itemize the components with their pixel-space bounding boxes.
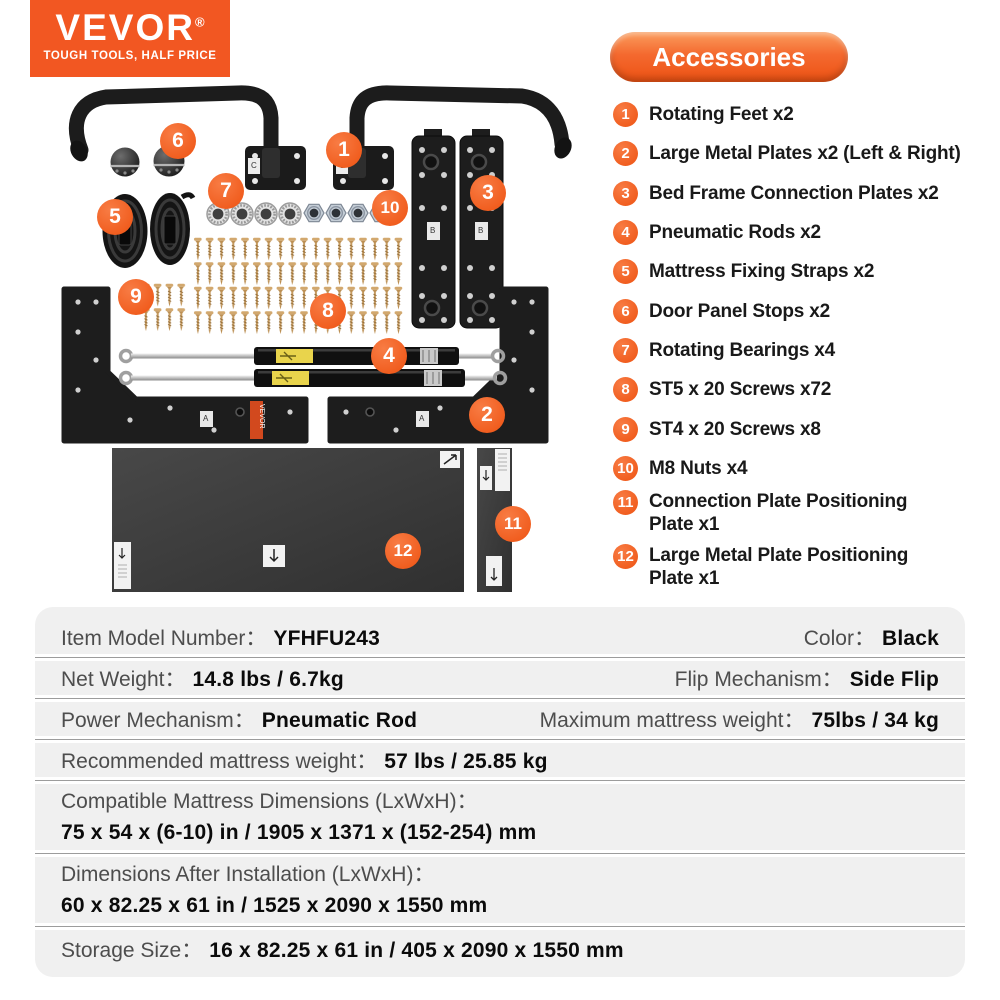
vevor-logo-wordmark: VEVOR® xyxy=(30,9,230,46)
spec-value: YFHFU243 xyxy=(273,627,380,651)
spec-row-mattress-dimensions: Compatible Mattress Dimensions (LxWxH)： … xyxy=(61,784,939,850)
accessory-label: Rotating Feet x2 xyxy=(649,103,794,126)
accessory-label: Rotating Bearings x4 xyxy=(649,339,835,362)
spec-row-weight-flip: Net Weight：14.8 lbs / 6.7kg Flip Mechani… xyxy=(61,661,939,695)
product-infographic: { "logo": { "brand": "VEVOR", "registere… xyxy=(0,0,1000,1000)
part-callout-4: 4 xyxy=(371,338,407,374)
accessory-item-7: 7Rotating Bearings x4 xyxy=(613,331,998,370)
spec-power-mechanism: Power Mechanism：Pneumatic Rod xyxy=(61,704,417,734)
accessory-item-4: 4Pneumatic Rods x2 xyxy=(613,213,998,252)
spec-row-power-maxweight: Power Mechanism：Pneumatic Rod Maximum ma… xyxy=(61,702,939,736)
spec-row-installed-dimensions: Dimensions After Installation (LxWxH)： 6… xyxy=(61,857,939,923)
large-plate-marking: A xyxy=(419,414,425,423)
part-callout-2: 2 xyxy=(469,397,505,433)
accessory-item-11: 11Connection Plate Positioning Plate x1 xyxy=(613,488,998,538)
spec-max-mattress-weight: Maximum mattress weight：75lbs / 34 kg xyxy=(540,704,939,734)
row-divider xyxy=(35,850,965,857)
accessory-label: Connection Plate Positioning Plate x1 xyxy=(649,490,907,536)
spec-model: Item Model Number：YFHFU243 xyxy=(61,622,380,652)
spec-value: Pneumatic Rod xyxy=(262,709,417,733)
accessory-item-2: 2Large Metal Plates x2 (Left & Right) xyxy=(613,134,998,173)
part-callout-1: 1 xyxy=(326,132,362,168)
accessory-number-badge: 8 xyxy=(613,377,638,402)
accessory-label: ST5 x 20 Screws x72 xyxy=(649,378,831,401)
vevor-logo: VEVOR® TOUGH TOOLS, HALF PRICE xyxy=(30,0,230,77)
accessory-label: Large Metal Plates x2 (Left & Right) xyxy=(649,142,961,165)
accessory-item-3: 3Bed Frame Connection Plates x2 xyxy=(613,174,998,213)
bed-frame-connection-plates: B B xyxy=(412,129,503,328)
part-callout-6: 6 xyxy=(160,123,196,159)
accessory-item-1: 1Rotating Feet x2 xyxy=(613,95,998,134)
accessory-label: Pneumatic Rods x2 xyxy=(649,221,821,244)
part-callout-8: 8 xyxy=(310,293,346,329)
part-callout-5: 5 xyxy=(97,199,133,235)
spec-label: Power Mechanism： xyxy=(61,704,255,734)
part-callout-3: 3 xyxy=(470,175,506,211)
accessory-item-9: 9ST4 x 20 Screws x8 xyxy=(613,409,998,448)
accessory-label: Large Metal Plate Positioning Plate x1 xyxy=(649,544,908,590)
spec-label: Compatible Mattress Dimensions (LxWxH)： xyxy=(61,786,939,817)
row-divider xyxy=(35,654,965,661)
spec-value: 75 x 54 x (6-10) in / 1905 x 1371 x (152… xyxy=(61,817,939,848)
feet-plate-marking: C xyxy=(251,161,257,170)
accessory-number-badge: 6 xyxy=(613,299,638,324)
screws-st5 xyxy=(192,237,404,335)
spec-label: Net Weight： xyxy=(61,663,186,693)
vevor-logo-tagline: TOUGH TOOLS, HALF PRICE xyxy=(30,50,230,62)
spec-value: 14.8 lbs / 6.7kg xyxy=(193,668,344,692)
spec-label: Dimensions After Installation (LxWxH)： xyxy=(61,859,939,890)
accessory-number-badge: 12 xyxy=(613,544,638,569)
spec-table: Item Model Number：YFHFU243 Color：Black N… xyxy=(35,607,965,977)
accessory-number-badge: 11 xyxy=(613,490,638,515)
spec-label: Recommended mattress weight： xyxy=(61,745,377,775)
spec-label: Item Model Number： xyxy=(61,622,266,652)
spec-value: Black xyxy=(882,627,939,651)
part-callout-12: 12 xyxy=(385,533,421,569)
accessory-item-8: 8ST5 x 20 Screws x72 xyxy=(613,370,998,409)
accessories-list: 1Rotating Feet x2 2Large Metal Plates x2… xyxy=(613,95,998,592)
accessory-number-badge: 10 xyxy=(613,456,638,481)
accessory-number-badge: 1 xyxy=(613,102,638,127)
spec-storage-size: Storage Size：16 x 82.25 x 61 in / 405 x … xyxy=(61,934,624,964)
spec-value: 75lbs / 34 kg xyxy=(811,709,939,733)
spec-recommended-weight: Recommended mattress weight：57 lbs / 25.… xyxy=(61,745,548,775)
spec-net-weight: Net Weight：14.8 lbs / 6.7kg xyxy=(61,663,344,693)
accessory-label: Mattress Fixing Straps x2 xyxy=(649,260,874,283)
accessory-label: ST4 x 20 Screws x8 xyxy=(649,418,821,441)
spec-value: 16 x 82.25 x 61 in / 405 x 2090 x 1550 m… xyxy=(209,939,624,963)
spec-flip-mechanism: Flip Mechanism：Side Flip xyxy=(675,663,939,693)
spec-color: Color：Black xyxy=(804,622,939,652)
spec-row-storage-size: Storage Size：16 x 82.25 x 61 in / 405 x … xyxy=(61,930,939,967)
part-callout-10: 10 xyxy=(372,190,408,226)
accessory-number-badge: 3 xyxy=(613,181,638,206)
positioning-plate-large xyxy=(112,448,464,592)
part-callout-9: 9 xyxy=(118,279,154,315)
spec-label: Color： xyxy=(804,622,875,652)
accessory-number-badge: 7 xyxy=(613,338,638,363)
row-divider xyxy=(35,736,965,743)
part-callout-7: 7 xyxy=(208,173,244,209)
accessory-label: M8 Nuts x4 xyxy=(649,457,747,480)
plate-brand-label: VEVOR xyxy=(258,404,265,429)
spec-label: Maximum mattress weight： xyxy=(540,704,805,734)
accessory-label: Bed Frame Connection Plates x2 xyxy=(649,182,939,205)
connection-plate-marking: B xyxy=(430,226,435,235)
accessory-item-12: 12Large Metal Plate Positioning Plate x1 xyxy=(613,542,998,592)
spec-value: Side Flip xyxy=(850,668,939,692)
row-divider xyxy=(35,695,965,702)
large-plate-marking: A xyxy=(203,414,209,423)
spec-label: Flip Mechanism： xyxy=(675,663,843,693)
registered-trademark-icon: ® xyxy=(195,15,205,30)
pneumatic-rods xyxy=(121,347,506,387)
spec-label: Storage Size： xyxy=(61,934,202,964)
accessory-number-badge: 2 xyxy=(613,141,638,166)
connection-plate-marking: B xyxy=(478,226,483,235)
accessory-number-badge: 9 xyxy=(613,417,638,442)
accessory-item-6: 6Door Panel Stops x2 xyxy=(613,291,998,330)
accessory-number-badge: 5 xyxy=(613,259,638,284)
accessories-title: Accessories xyxy=(610,32,848,82)
accessory-number-badge: 4 xyxy=(613,220,638,245)
accessory-item-10: 10M8 Nuts x4 xyxy=(613,449,998,488)
accessory-label: Door Panel Stops x2 xyxy=(649,300,830,323)
spec-value: 60 x 82.25 x 61 in / 1525 x 2090 x 1550 … xyxy=(61,890,939,921)
accessory-item-5: 5Mattress Fixing Straps x2 xyxy=(613,252,998,291)
spec-row-model-color: Item Model Number：YFHFU243 Color：Black xyxy=(61,620,939,654)
spec-row-recommended-weight: Recommended mattress weight：57 lbs / 25.… xyxy=(61,743,939,777)
part-callout-11: 11 xyxy=(495,506,531,542)
row-divider xyxy=(35,777,965,784)
row-divider xyxy=(35,923,965,930)
spec-value: 57 lbs / 25.85 kg xyxy=(384,750,547,774)
